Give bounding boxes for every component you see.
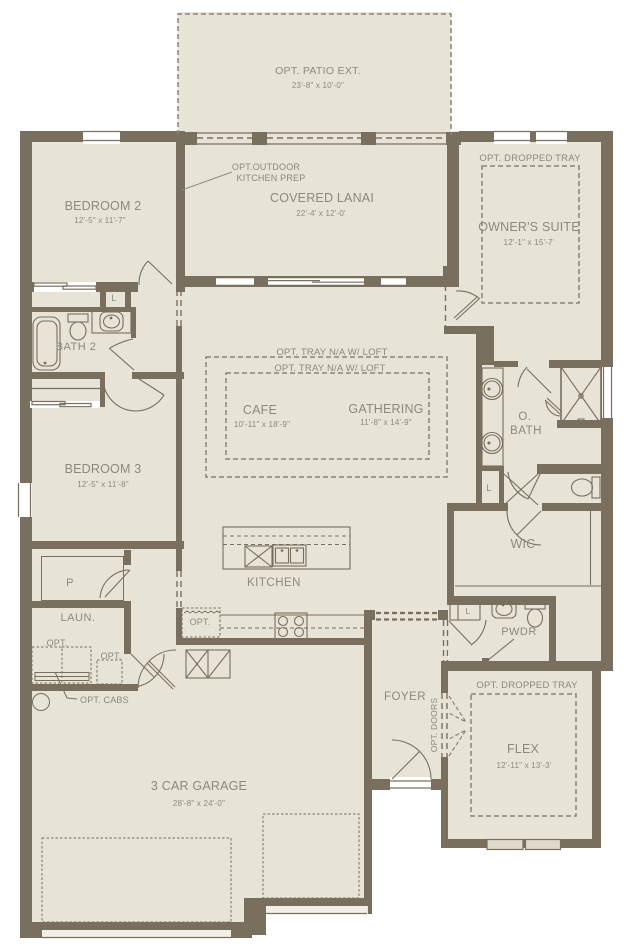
svg-text:12'-5" x 11'-8": 12'-5" x 11'-8"	[77, 480, 129, 489]
svg-text:22'-4' x 12'-0': 22'-4' x 12'-0'	[296, 209, 346, 218]
svg-text:FOYER: FOYER	[384, 691, 426, 703]
svg-text:KITCHEN PREP: KITCHEN PREP	[237, 173, 306, 183]
svg-text:OPT.: OPT.	[47, 638, 68, 648]
svg-text:GATHERING: GATHERING	[348, 402, 423, 416]
svg-text:L: L	[466, 606, 471, 616]
svg-text:CAFE: CAFE	[243, 403, 277, 417]
svg-text:11'-8" x 14'-9": 11'-8" x 14'-9"	[360, 418, 412, 427]
svg-text:OPT. DROPPED TRAY: OPT. DROPPED TRAY	[476, 680, 578, 691]
svg-text:COVERED LANAI: COVERED LANAI	[270, 191, 374, 205]
svg-text:OWNER'S SUITE: OWNER'S SUITE	[478, 220, 580, 234]
svg-text:OPT. DROPPED TRAY: OPT. DROPPED TRAY	[479, 153, 581, 164]
svg-text:BEDROOM 3: BEDROOM 3	[65, 462, 142, 476]
svg-text:OPT.: OPT.	[101, 651, 122, 661]
svg-text:OPT. DOORS: OPT. DOORS	[429, 698, 439, 753]
svg-text:BEDROOM 2: BEDROOM 2	[65, 199, 142, 213]
svg-text:WIC: WIC	[511, 537, 536, 551]
svg-text:P: P	[66, 577, 74, 589]
svg-text:PWDR: PWDR	[501, 626, 537, 638]
svg-text:28'-8" x 24'-0": 28'-8" x 24'-0"	[173, 799, 225, 808]
svg-text:OPT. TRAY N/A W/ LOFT: OPT. TRAY N/A W/ LOFT	[276, 347, 387, 358]
svg-text:3 CAR GARAGE: 3 CAR GARAGE	[151, 779, 247, 793]
svg-text:OPT. PATIO EXT.: OPT. PATIO EXT.	[275, 65, 361, 77]
svg-text:BATH 2: BATH 2	[56, 341, 97, 353]
svg-text:FLEX: FLEX	[507, 742, 540, 756]
svg-text:OPT. CABS: OPT. CABS	[80, 695, 129, 705]
svg-text:12'-5" x 11'-7": 12'-5" x 11'-7"	[74, 216, 126, 225]
svg-text:23'-8" x 10'-0": 23'-8" x 10'-0"	[292, 81, 344, 90]
svg-text:L: L	[486, 483, 491, 493]
svg-text:12'-1" x 15'-7': 12'-1" x 15'-7'	[504, 238, 555, 247]
svg-text:10'-11" x 18'-9": 10'-11" x 18'-9"	[234, 420, 290, 429]
svg-text:OPT.: OPT.	[190, 617, 211, 627]
svg-text:L: L	[111, 293, 116, 303]
svg-text:LAUN.: LAUN.	[61, 612, 96, 624]
svg-text:OPT. TRAY N/A W/ LOFT: OPT. TRAY N/A W/ LOFT	[274, 363, 385, 374]
svg-text:O.: O.	[518, 411, 531, 423]
svg-text:BATH: BATH	[510, 425, 542, 437]
svg-text:KITCHEN: KITCHEN	[247, 577, 301, 589]
svg-text:OPT.OUTDOOR: OPT.OUTDOOR	[232, 162, 301, 172]
svg-text:12'-11" x 13'-3': 12'-11" x 13'-3'	[497, 761, 552, 770]
